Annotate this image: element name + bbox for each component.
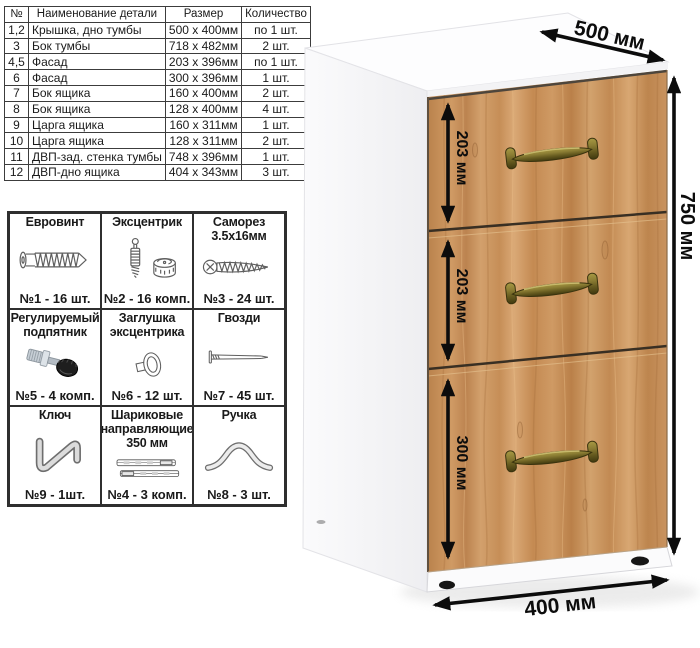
hardware-grid: Евровинт №1 - 16 шт. Эксцентрик [7,211,287,507]
part-qty: 4 шт. [242,101,311,117]
dim-arrow-depth [542,32,663,60]
cabinet-plinth [427,547,672,592]
dim-arrow-width [435,580,667,605]
hardware-title: Саморез 3.5x16мм [195,216,283,244]
part-size: 128 x 311мм [165,133,241,149]
cabinet-top [305,13,668,91]
hex-key-icon [19,423,91,487]
part-qty: 2 шт. [242,133,311,149]
part-qty: 1 шт. [242,117,311,133]
table-row: 10 Царга ящика 128 x 311мм 2 шт. [5,133,311,149]
hardware-title: Заглушка эксцентрика [103,312,191,340]
cabinet-side-panel [303,48,427,592]
table-row: 4,5 Фасад 203 x 396мм по 1 шт. [5,54,311,70]
header-size: Размер [165,7,241,23]
part-name: Крышка, дно тумбы [29,22,166,38]
part-number: 11 [5,149,29,165]
part-qty: 2 шт. [242,85,311,101]
hardware-title: Регулируемый подпятник [11,312,100,340]
hardware-cell-cam-lock: Эксцентрик №2 - 16 комп. [101,213,193,309]
cabinet-top-edge [427,62,668,98]
hardware-cell-euro-screw: Евровинт №1 - 16 шт. [9,213,101,309]
part-size: 718 x 482мм [165,38,241,54]
part-qty: по 1 шт. [242,22,311,38]
dimension-arrows [435,32,674,605]
cabinet-foot-back [317,520,326,524]
hardware-count: №1 - 16 шт. [19,291,90,306]
hardware-count: №2 - 16 комп. [104,291,191,306]
part-name: Фасад [29,54,166,70]
part-qty: 1 шт. [242,149,311,165]
hardware-title: Евровинт [26,216,85,230]
part-size: 748 x 396мм [165,149,241,165]
dim-label-depth: 500 мм [572,16,647,55]
part-number: 12 [5,164,29,180]
hardware-cell-ball-slides: Шариковые направляющие 350 мм [101,406,193,505]
hardware-title: Ручка [222,409,257,423]
cabinet-foot-left [439,581,455,589]
part-qty: 3 шт. [242,164,311,180]
hardware-title: Гвозди [218,312,260,326]
handle-icon [198,423,280,487]
header-name: Наименование детали [29,7,166,23]
adjustable-foot-icon [14,340,96,389]
drawer-handle-1 [505,138,599,169]
part-number: 4,5 [5,54,29,70]
table-row: 1,2 Крышка, дно тумбы 500 x 400мм по 1 ш… [5,22,311,38]
dim-label-width: 400 мм [523,590,597,621]
hardware-count: №3 - 24 шт. [203,291,274,306]
cabinet-body [303,13,672,592]
part-name: Бок ящика [29,85,166,101]
floor-shadow [400,576,700,608]
part-name: Царга ящика [29,117,166,133]
drawer-handle-3 [505,441,599,472]
part-size: 160 x 400мм [165,85,241,101]
part-number: 8 [5,101,29,117]
table-row: 3 Бок тумбы 718 x 482мм 2 шт. [5,38,311,54]
part-name: Царга ящика [29,133,166,149]
part-qty: 2 шт. [242,38,311,54]
self-tapping-screw-icon [198,244,280,292]
header-quantity: Количество [242,7,311,23]
header-number: № [5,7,29,23]
hardware-cell-nails: Гвозди №7 - 45 шт. [193,309,285,406]
parts-table-header-row: № Наименование детали Размер Количество [5,7,311,23]
part-size: 160 x 311мм [165,117,241,133]
hardware-cell-hex-key: Ключ №9 - 1шт. [9,406,101,505]
dim-label-drawer-3: 300 мм [453,436,470,491]
hardware-cell-adjustable-foot: Регулируемый подпятник №5 - 4 комп. [9,309,101,406]
cam-cover-icon [106,340,188,389]
cam-lock-icon [106,230,188,291]
hardware-cell-handle: Ручка №8 - 3 шт. [193,406,285,505]
hardware-count: №4 - 3 комп. [107,487,186,502]
hardware-count: №7 - 45 шт. [203,388,274,403]
part-number: 3 [5,38,29,54]
part-name: Бок тумбы [29,38,166,54]
drawer-fronts [428,58,667,572]
hardware-count: №6 - 12 шт. [111,388,182,403]
table-row: 7 Бок ящика 160 x 400мм 2 шт. [5,85,311,101]
nail-icon [198,326,280,388]
hardware-cell-cam-cover: Заглушка эксцентрика №6 - 12 шт. [101,309,193,406]
part-size: 128 x 400мм [165,101,241,117]
hardware-count: №8 - 3 шт. [207,487,271,502]
hardware-count: №9 - 1шт. [25,487,85,502]
drawer-gaps [428,212,667,376]
parts-table: № Наименование детали Размер Количество … [4,6,311,181]
part-name: Бок ящика [29,101,166,117]
hardware-title: Эксцентрик [112,216,182,230]
table-row: 12 ДВП-дно ящика 404 x 343мм 3 шт. [5,164,311,180]
hardware-cell-self-tapping-screw: Саморез 3.5x16мм №3 - 24 шт. [193,213,285,309]
part-name: Фасад [29,70,166,86]
drawer-handle-2 [505,273,599,304]
euro-screw-icon [14,230,96,291]
table-row: 8 Бок ящика 128 x 400мм 4 шт. [5,101,311,117]
part-size: 300 x 396мм [165,70,241,86]
part-number: 9 [5,117,29,133]
dim-label-drawer-2: 203 мм [453,269,470,324]
cabinet-foot-right [631,557,649,566]
hardware-title: Ключ [39,409,71,423]
wood-grain [442,58,658,570]
part-name: ДВП-дно ящика [29,164,166,180]
hardware-title: Шариковые направляющие 350 мм [101,409,193,450]
part-qty: 1 шт. [242,70,311,86]
part-name: ДВП-зад. стенка тумбы [29,149,166,165]
table-row: 6 Фасад 300 x 396мм 1 шт. [5,70,311,86]
part-number: 10 [5,133,29,149]
part-number: 7 [5,85,29,101]
part-qty: по 1 шт. [242,54,311,70]
dim-label-drawer-1: 203 мм [453,131,470,186]
table-row: 9 Царга ящика 160 x 311мм 1 шт. [5,117,311,133]
part-size: 203 x 396мм [165,54,241,70]
part-size: 500 x 400мм [165,22,241,38]
dim-label-height: 750 мм [676,192,698,261]
hardware-count: №5 - 4 комп. [15,388,94,403]
part-size: 404 x 343мм [165,164,241,180]
part-number: 6 [5,70,29,86]
table-row: 11 ДВП-зад. стенка тумбы 748 x 396мм 1 ш… [5,149,311,165]
part-number: 1,2 [5,22,29,38]
ball-slides-icon [106,450,188,487]
